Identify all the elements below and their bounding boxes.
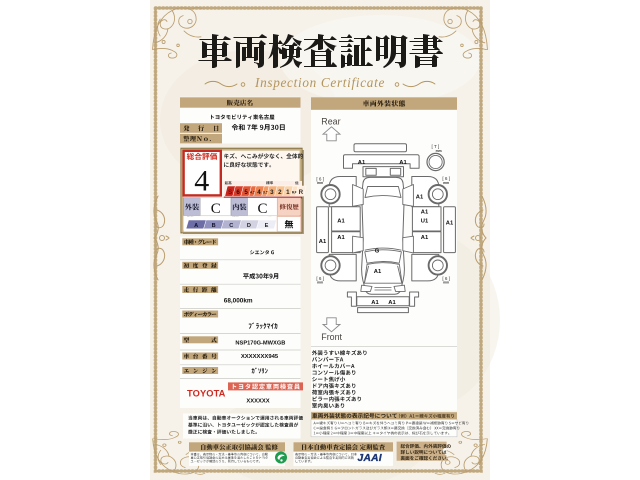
svg-text:NSP170G-MWXGB: NSP170G-MWXGB — [235, 341, 285, 347]
svg-text:A1: A1 — [337, 219, 345, 225]
svg-text:4: 4 — [194, 164, 209, 197]
svg-text:Rear: Rear — [321, 116, 340, 126]
svg-text:Inspection Certificate: Inspection Certificate — [254, 75, 385, 90]
svg-text:mm: mm — [436, 149, 442, 153]
svg-text:A1: A1 — [358, 160, 366, 166]
svg-text:mm: mm — [317, 181, 323, 185]
svg-text:D: D — [247, 223, 251, 229]
svg-text:S: S — [228, 189, 232, 196]
svg-text:A1: A1 — [337, 235, 345, 241]
svg-text:U1: U1 — [421, 219, 429, 225]
svg-text:A1: A1 — [421, 210, 429, 216]
svg-text:A1: A1 — [319, 239, 327, 245]
svg-text:A1: A1 — [374, 269, 382, 275]
svg-text:XXXXXX: XXXXXX — [246, 399, 269, 405]
svg-text:1: 1 — [286, 189, 290, 196]
svg-text:C: C — [229, 223, 233, 229]
svg-text:A: A — [194, 223, 198, 229]
svg-text:TOYOTA: TOYOTA — [187, 388, 226, 398]
svg-text:A1: A1 — [416, 195, 424, 201]
svg-text:A1: A1 — [421, 235, 429, 241]
svg-text:6: 6 — [236, 189, 240, 196]
svg-text:C: C — [257, 201, 267, 217]
svg-text:mm: mm — [443, 181, 449, 185]
svg-text:JAAI: JAAI — [358, 453, 382, 464]
svg-text:R: R — [299, 189, 304, 196]
svg-text:5: 5 — [244, 189, 248, 196]
svg-text:A1: A1 — [446, 221, 454, 227]
svg-text:68,000km: 68,000km — [224, 298, 253, 305]
svg-text:A1: A1 — [371, 300, 379, 306]
svg-text:Front: Front — [321, 332, 342, 342]
svg-text:4: 4 — [257, 189, 261, 196]
svg-text:A1: A1 — [388, 300, 396, 306]
svg-text:E: E — [265, 223, 269, 229]
svg-text:mm: mm — [443, 281, 449, 285]
svg-text:G: G — [375, 249, 380, 255]
svg-text:C: C — [211, 201, 221, 217]
svg-text:2: 2 — [278, 189, 282, 196]
svg-text:A1: A1 — [399, 160, 407, 166]
svg-text:XXXXXXX945: XXXXXXX945 — [241, 354, 279, 360]
svg-text:3: 3 — [270, 189, 274, 196]
svg-text:mm: mm — [317, 281, 323, 285]
svg-text:B: B — [212, 223, 216, 229]
